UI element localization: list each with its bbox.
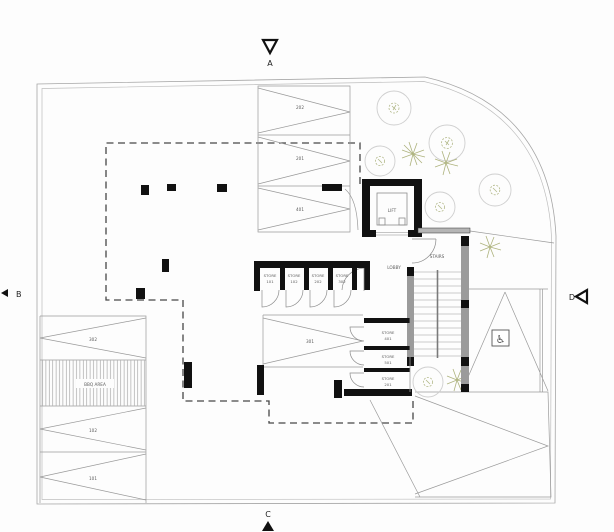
section-marker-a: A <box>263 40 277 68</box>
floor-plan: 202 201 401 302 BBQ AREA 102 101 301 ♿ <box>0 0 614 532</box>
stairs-label: STAIRS <box>430 254 445 259</box>
store-column: STORE 401 STORE 501 STORE 201 <box>344 318 412 396</box>
parking-stall-bottom-right <box>370 392 551 497</box>
section-arrow-up-icon <box>262 521 274 531</box>
section-arrow-left-icon <box>576 290 587 303</box>
wall-segment <box>364 318 410 323</box>
parking-number: 201 <box>296 156 304 161</box>
lift-label: LIFT <box>388 208 397 213</box>
wall-segment <box>344 389 412 396</box>
parking-block-top: 202 201 401 <box>258 86 350 232</box>
wall-segment <box>304 268 309 290</box>
wall-segment <box>364 346 410 350</box>
right-yard-edge <box>470 231 554 243</box>
wall-segment <box>364 261 370 290</box>
store-door-arcs <box>350 327 364 387</box>
bbq-area-label: BBQ AREA <box>84 382 106 387</box>
store-label: STORE <box>288 273 301 278</box>
store-row: STORE 101 STORE 102 STORE 202 STORE 302 <box>254 261 364 307</box>
store-label: STORE <box>382 330 395 335</box>
wall-segment <box>352 268 357 290</box>
store-label: STORE <box>336 273 349 278</box>
wall-segment <box>254 261 364 268</box>
store-label: STORE <box>264 273 277 278</box>
parking-stall-middle: 301 <box>263 315 363 367</box>
section-marker-b: B <box>1 289 22 299</box>
store-number: 501 <box>384 360 392 365</box>
stair-wall <box>461 236 469 392</box>
parking-chevron <box>415 396 548 494</box>
store-number: 101 <box>266 279 274 284</box>
door-swing-arc <box>412 239 436 263</box>
column <box>217 184 227 192</box>
wall-segment <box>328 268 333 290</box>
parking-block-left: 302 BBQ AREA 102 101 <box>40 316 146 503</box>
store-label: STORE <box>312 273 325 278</box>
wall-segment <box>254 261 260 291</box>
section-arrow-down-icon <box>263 40 277 53</box>
section-letter: B <box>16 290 22 299</box>
wall-segment <box>364 368 410 372</box>
parking-top-outline <box>258 86 350 232</box>
parking-chevron <box>258 137 350 184</box>
section-letter: C <box>265 510 271 519</box>
section-arrow-left-icon <box>1 289 8 297</box>
store-label: STORE <box>382 354 395 359</box>
column <box>184 362 192 388</box>
lift-shaft: LIFT <box>362 179 422 237</box>
stair-wall <box>407 267 414 366</box>
store-number: 202 <box>314 279 322 284</box>
column <box>167 184 176 191</box>
section-letter: D <box>569 293 575 302</box>
column <box>136 288 145 299</box>
section-marker-d: D <box>569 290 587 303</box>
staircase: STAIRS <box>407 228 470 392</box>
parking-number: 102 <box>89 428 97 433</box>
column <box>162 259 169 272</box>
parking-left-outline <box>40 316 146 503</box>
column <box>257 365 264 395</box>
lobby-label: LOBBY <box>387 265 401 270</box>
wall-segment <box>280 268 285 290</box>
parking-number: 302 <box>89 337 97 342</box>
section-letter: A <box>267 59 273 68</box>
store-label: STORE <box>382 376 395 381</box>
parking-chevron <box>258 188 350 230</box>
parking-chevron <box>258 88 350 133</box>
wheelchair-icon: ♿ <box>496 333 506 346</box>
parking-number: 202 <box>296 105 304 110</box>
parking-number: 401 <box>296 207 304 212</box>
column <box>141 185 149 195</box>
store-number: 102 <box>290 279 298 284</box>
store-number: 401 <box>384 336 392 341</box>
floor-plan-drawing: 202 201 401 302 BBQ AREA 102 101 301 ♿ <box>0 0 614 532</box>
wall-segment <box>322 184 342 191</box>
store-number: 201 <box>384 382 392 387</box>
section-marker-c: C <box>262 510 274 531</box>
parking-number: 101 <box>89 476 97 481</box>
store-number: 302 <box>338 279 346 284</box>
parking-number: 301 <box>306 339 314 344</box>
disabled-parking-stall: ♿ <box>462 289 548 392</box>
store-door-arcs <box>262 290 351 307</box>
column <box>334 380 342 398</box>
structural-columns <box>136 184 342 398</box>
site-boundary <box>37 77 556 504</box>
